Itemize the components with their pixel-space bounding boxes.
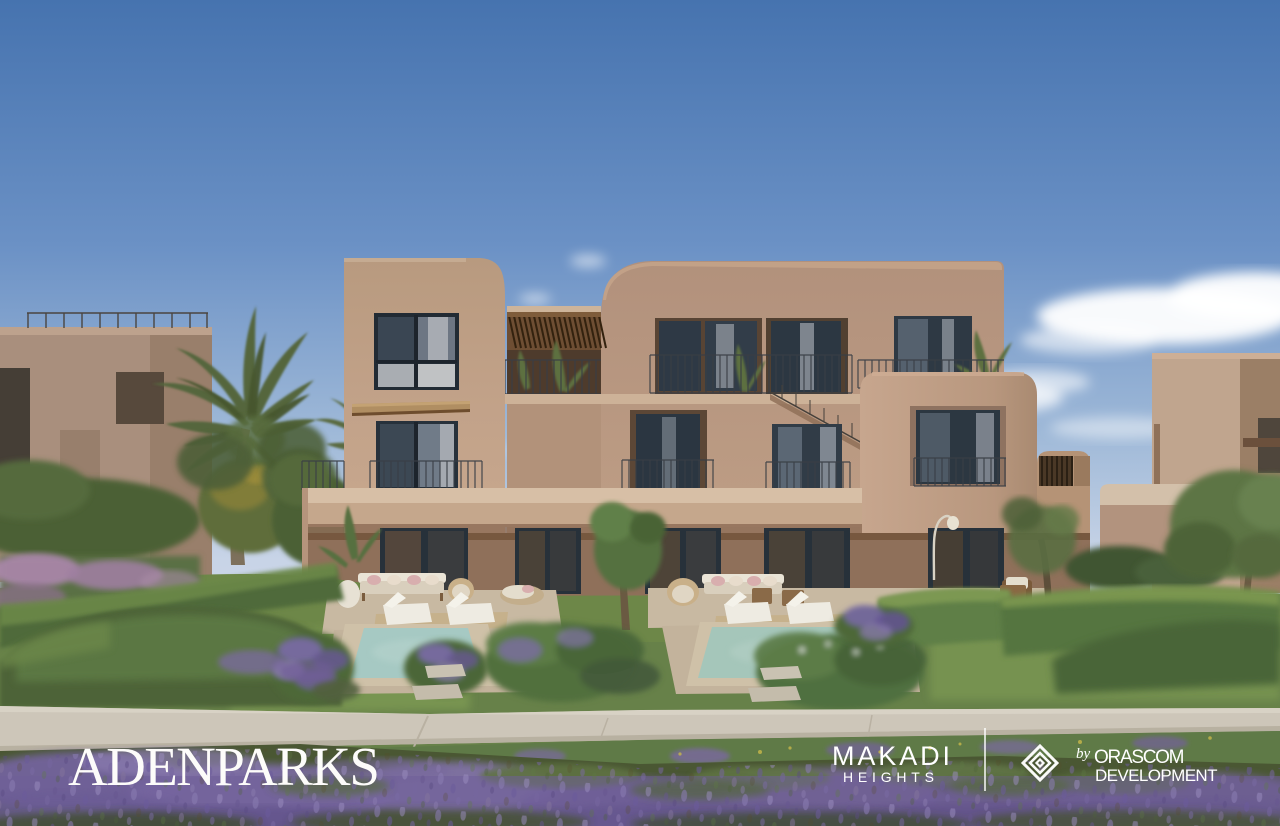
svg-text:ORASCOM: ORASCOM xyxy=(1094,747,1186,768)
svg-text:ADENPARKS: ADENPARKS xyxy=(68,736,384,797)
svg-text:by: by xyxy=(1076,746,1091,762)
svg-text:MAKADI: MAKADI xyxy=(832,741,955,771)
svg-text:DEVELOPMENT: DEVELOPMENT xyxy=(1095,766,1218,785)
svg-text:HEIGHTS: HEIGHTS xyxy=(843,769,940,785)
